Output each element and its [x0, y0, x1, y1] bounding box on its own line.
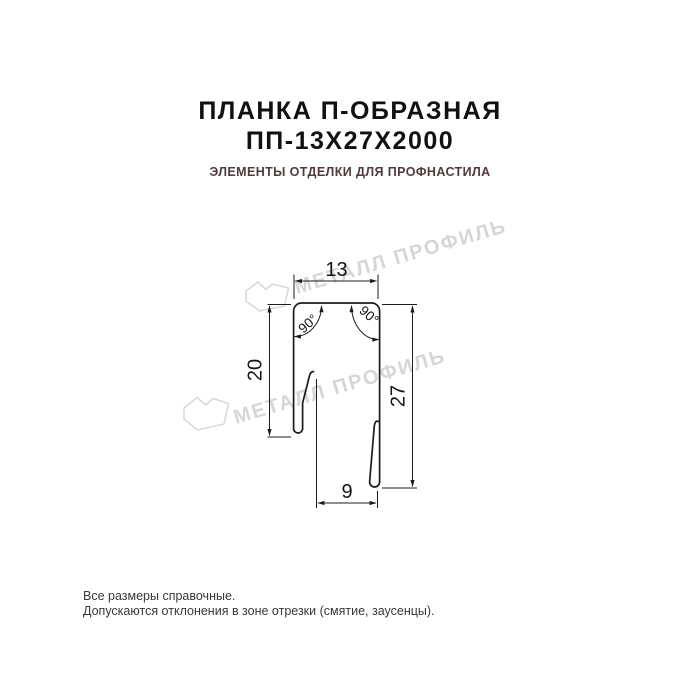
angle-label-left: 90°	[295, 311, 320, 336]
footer-note-line-2: Допускаются отклонения в зоне отрезки (с…	[83, 604, 435, 619]
dim-label-20: 20	[245, 359, 267, 381]
dim-label-13: 13	[325, 259, 347, 281]
footer-note-line-1: Все размеры справочные.	[83, 589, 435, 604]
svg-text:МЕТАЛЛ ПРОФИЛЬ: МЕТАЛЛ ПРОФИЛЬ	[231, 345, 448, 429]
dimension-right-height: 27	[382, 305, 417, 489]
watermark-text-middle: МЕТАЛЛ ПРОФИЛЬ	[231, 345, 448, 429]
angle-left-90: 90°	[295, 306, 322, 337]
watermark-logo-top	[246, 282, 289, 311]
footer-notes: Все размеры справочные. Допускаются откл…	[83, 589, 435, 618]
dim-label-27: 27	[388, 385, 410, 407]
watermark-logo-middle	[184, 398, 229, 431]
watermark-text-top: МЕТАЛЛ ПРОФИЛЬ	[292, 215, 509, 299]
angle-right-90: 90°	[352, 303, 382, 340]
svg-text:МЕТАЛЛ ПРОФИЛЬ: МЕТАЛЛ ПРОФИЛЬ	[292, 215, 509, 299]
dim-label-9: 9	[341, 481, 352, 503]
